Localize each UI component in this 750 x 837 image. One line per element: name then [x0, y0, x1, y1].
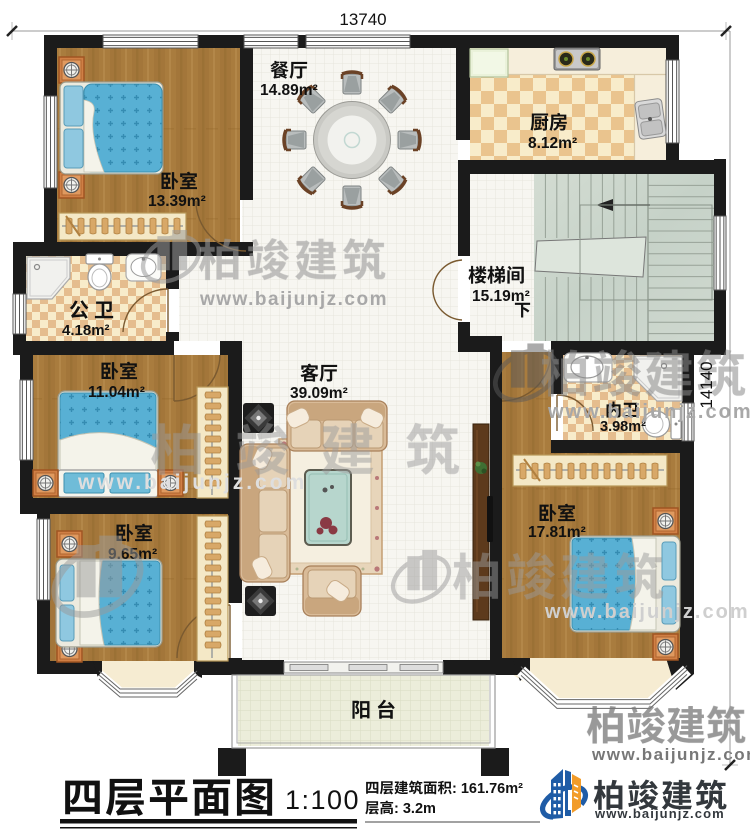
svg-text:: 161.76m²: : 161.76m²	[452, 781, 523, 797]
svg-text:www.baijunjz.com: www.baijunjz.com	[77, 471, 307, 494]
svg-text:4.18m²: 4.18m²	[62, 322, 110, 339]
svg-text:14.89m²: 14.89m²	[260, 82, 318, 99]
svg-text:www.baijunjz.com: www.baijunjz.com	[544, 601, 750, 623]
svg-text:1:100: 1:100	[285, 785, 360, 815]
svg-text:www.baijunjz.com: www.baijunjz.com	[547, 401, 750, 423]
svg-text:39.09m²: 39.09m²	[290, 385, 348, 402]
svg-text:17.81m²: 17.81m²	[528, 524, 586, 541]
svg-text:www.baijunjz.com: www.baijunjz.com	[199, 289, 388, 310]
svg-text:13740: 13740	[339, 10, 386, 29]
svg-text:15.19m²: 15.19m²	[472, 288, 530, 305]
svg-text:www.baijunjz.com: www.baijunjz.com	[594, 806, 725, 821]
svg-text:8.12m²: 8.12m²	[528, 135, 577, 152]
svg-text:14140: 14140	[697, 361, 716, 408]
svg-text:www.baijunjz.com: www.baijunjz.com	[591, 745, 750, 764]
svg-text:13.39m²: 13.39m²	[148, 193, 206, 210]
svg-text:: 3.2m: : 3.2m	[394, 801, 436, 817]
svg-text:11.04m²: 11.04m²	[88, 384, 145, 401]
